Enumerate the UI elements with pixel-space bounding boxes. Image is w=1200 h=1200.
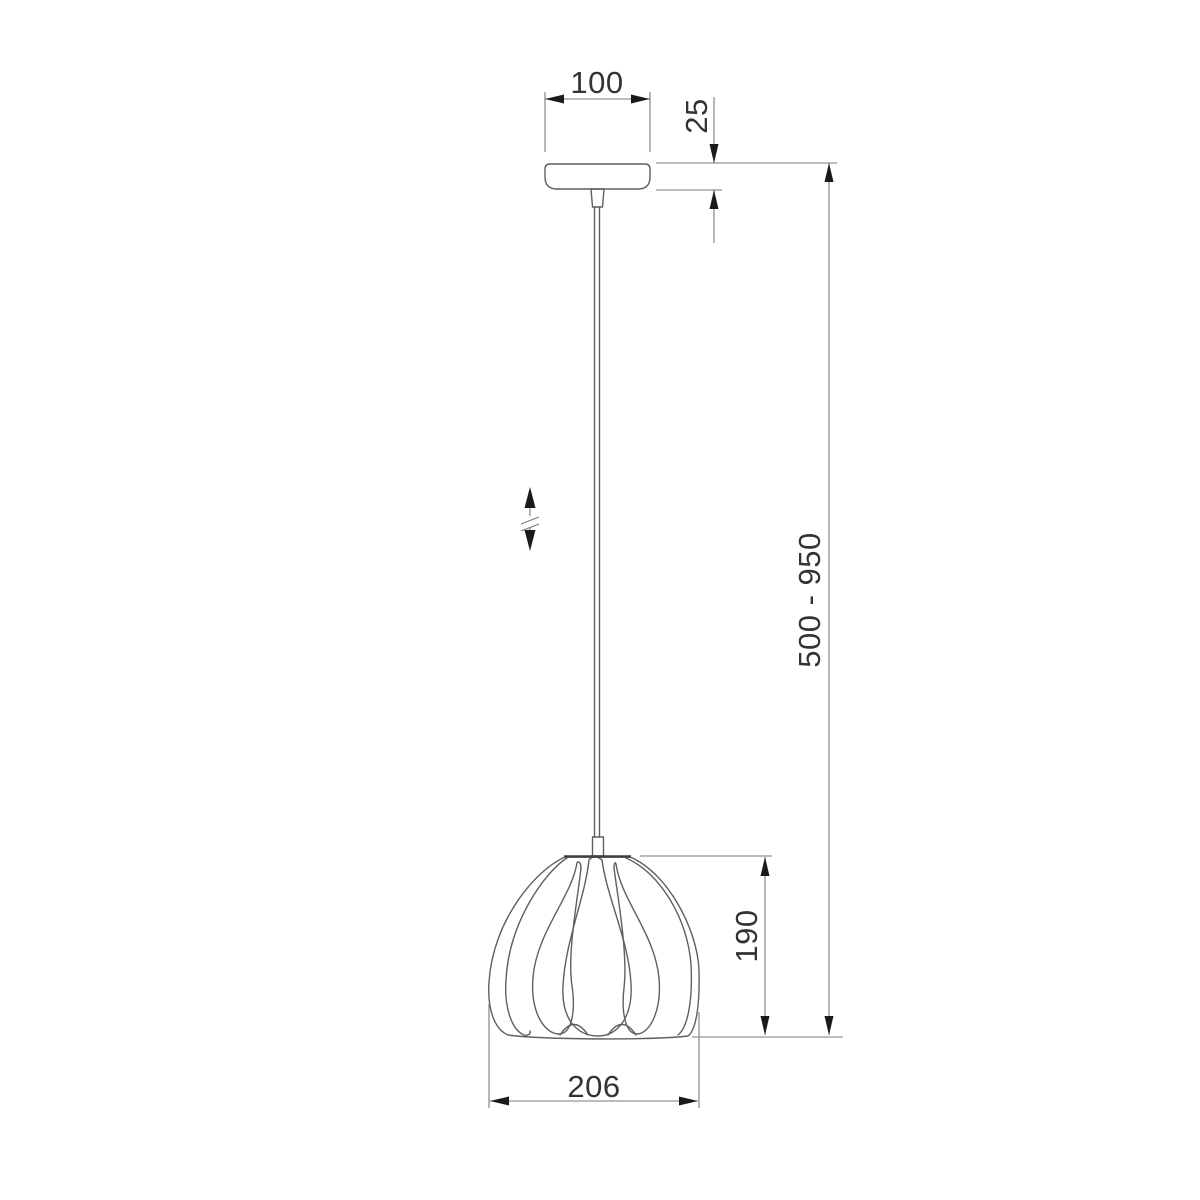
ceiling-canopy xyxy=(545,164,650,189)
dimension-labels: 100 25 500 - 950 190 206 xyxy=(567,65,827,1104)
arrow-suspension-range-top xyxy=(825,163,834,182)
arrow-height-adjustment-down xyxy=(525,530,536,551)
height-adjustment-break-mark-upper xyxy=(521,517,539,524)
shade-petal-left-edge xyxy=(506,858,567,1035)
arrow-canopy-height-top xyxy=(710,144,719,163)
arrow-shade-height-top xyxy=(761,857,770,876)
shade-petal-right-edge xyxy=(626,858,691,1035)
arrow-shade-width-left xyxy=(490,1097,509,1106)
arrow-shade-height-bottom xyxy=(761,1016,770,1035)
shade-petal-teardrop-left xyxy=(533,862,581,1034)
canopy-width-label: 100 xyxy=(570,65,623,100)
dimension-arrowheads xyxy=(490,95,834,1106)
arrow-shade-width-right xyxy=(679,1097,698,1106)
lamp-socket xyxy=(593,837,604,856)
arrow-height-adjustment-up xyxy=(525,487,536,508)
shade-width-label: 206 xyxy=(567,1069,620,1104)
arrow-canopy-width-right xyxy=(631,95,650,104)
lamp-object xyxy=(489,164,699,1039)
drawing-canvas: 100 25 500 - 950 190 206 xyxy=(0,0,1200,1200)
cord-grip xyxy=(591,189,604,207)
height-adjustment-icon xyxy=(521,507,539,532)
shade-silhouette xyxy=(489,857,699,1039)
shade-height-label: 190 xyxy=(729,909,764,962)
shade-petal-teardrop-right xyxy=(614,863,659,1034)
arrow-suspension-range-bottom xyxy=(825,1016,834,1035)
dimension-lines xyxy=(489,92,843,1108)
shade-petal-bottom-arc-right xyxy=(608,1025,636,1036)
arrow-canopy-width-left xyxy=(545,95,564,104)
arrow-canopy-height-bottom xyxy=(710,190,719,209)
suspension-range-label: 500 - 950 xyxy=(792,532,827,668)
canopy-height-label: 25 xyxy=(679,98,714,133)
pendant-lamp-drawing: 100 25 500 - 950 190 206 xyxy=(0,0,1200,1200)
